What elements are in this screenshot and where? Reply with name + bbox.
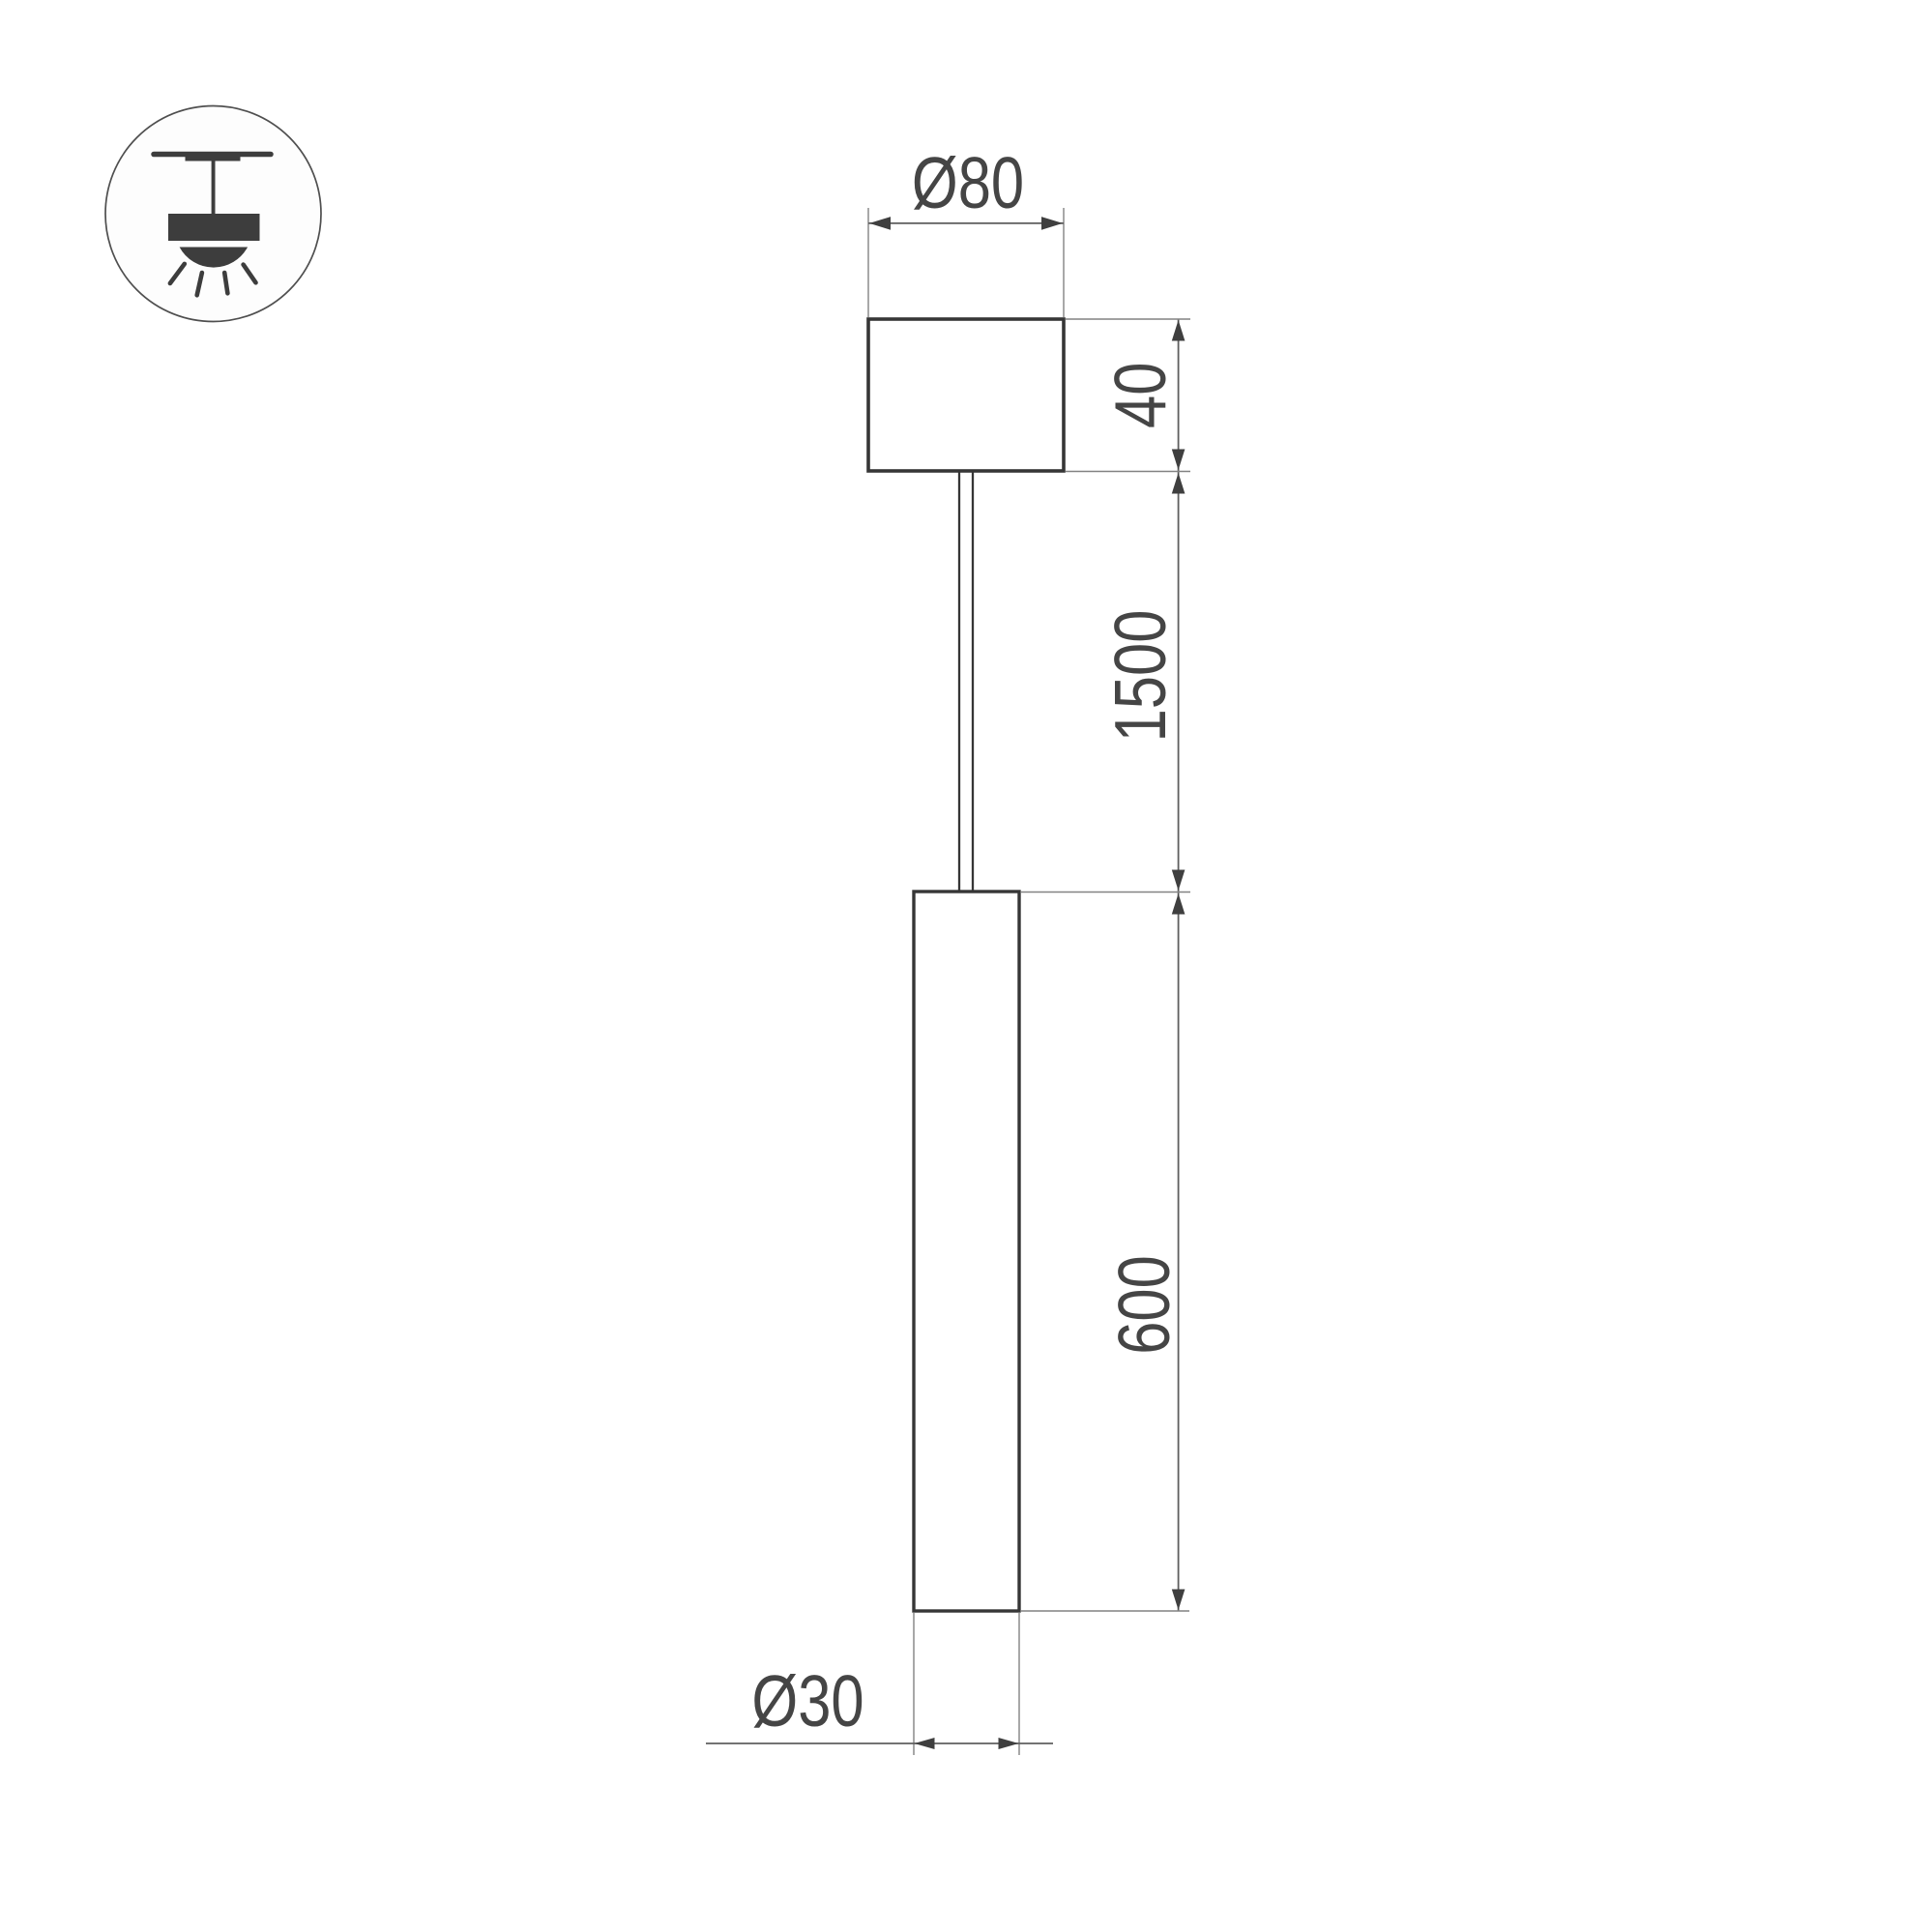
svg-text:40: 40 [1099,363,1181,428]
svg-text:1500: 1500 [1099,610,1181,743]
svg-text:600: 600 [1103,1255,1185,1355]
svg-text:Ø80: Ø80 [912,142,1024,223]
svg-text:Ø30: Ø30 [751,1660,864,1742]
